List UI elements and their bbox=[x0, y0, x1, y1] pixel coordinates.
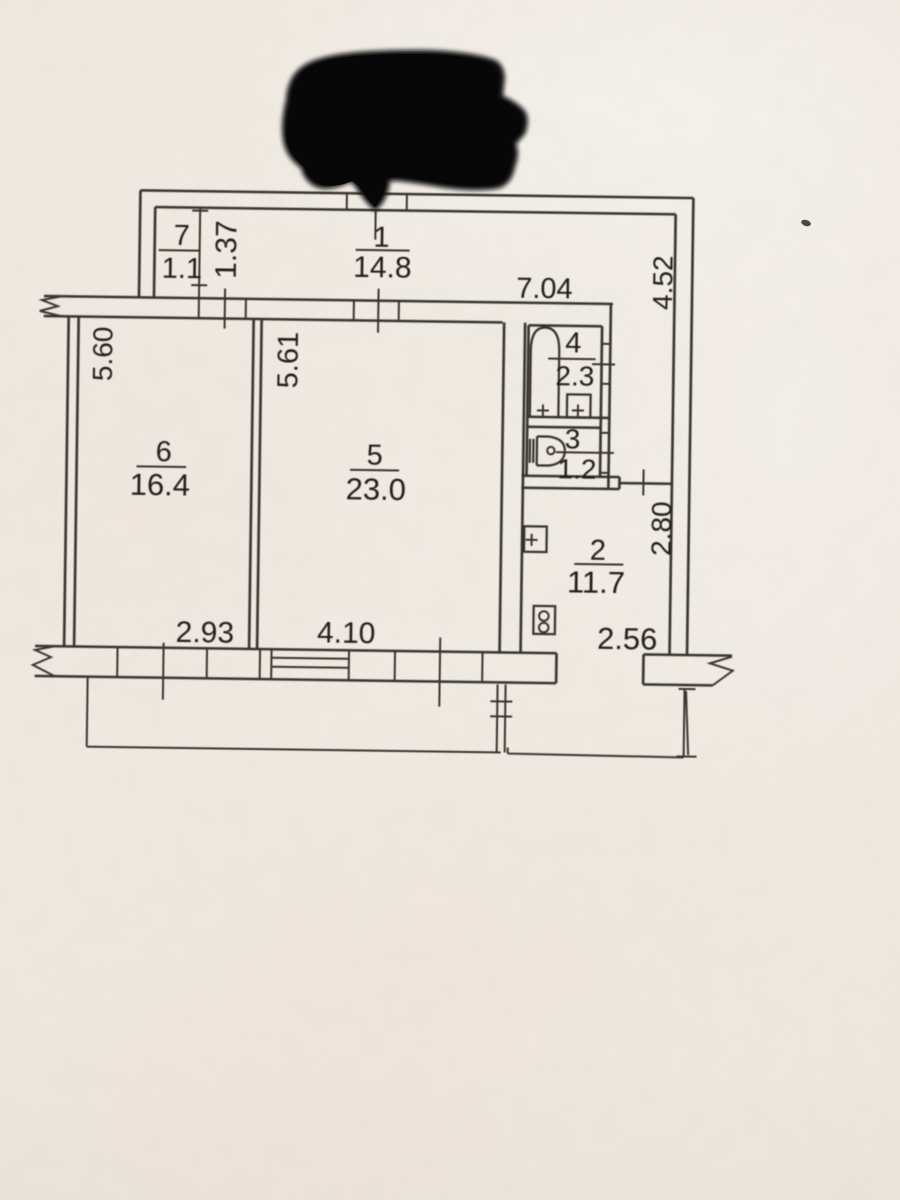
svg-text:2.56: 2.56 bbox=[597, 621, 658, 657]
svg-text:2.93: 2.93 bbox=[175, 616, 234, 650]
svg-text:5.60: 5.60 bbox=[87, 326, 119, 381]
svg-text:7: 7 bbox=[174, 220, 191, 252]
svg-text:1.1: 1.1 bbox=[162, 253, 203, 286]
svg-text:6: 6 bbox=[156, 436, 173, 468]
svg-text:1: 1 bbox=[373, 222, 390, 254]
svg-text:4.52: 4.52 bbox=[647, 255, 679, 310]
svg-text:7.04: 7.04 bbox=[516, 273, 573, 306]
svg-text:1.2: 1.2 bbox=[557, 453, 596, 485]
svg-text:11.7: 11.7 bbox=[567, 564, 626, 600]
svg-text:4: 4 bbox=[565, 327, 582, 359]
svg-text:2.80: 2.80 bbox=[645, 501, 677, 556]
svg-text:5: 5 bbox=[366, 440, 383, 472]
svg-text:1.37: 1.37 bbox=[210, 220, 244, 279]
svg-text:4.10: 4.10 bbox=[317, 616, 376, 650]
svg-text:14.8: 14.8 bbox=[353, 251, 412, 285]
svg-text:5.61: 5.61 bbox=[272, 332, 305, 389]
svg-text:2: 2 bbox=[590, 535, 607, 567]
svg-text:23.0: 23.0 bbox=[345, 471, 406, 507]
svg-text:2.3: 2.3 bbox=[555, 360, 594, 392]
svg-text:3: 3 bbox=[565, 423, 581, 454]
svg-text:16.4: 16.4 bbox=[129, 467, 190, 503]
